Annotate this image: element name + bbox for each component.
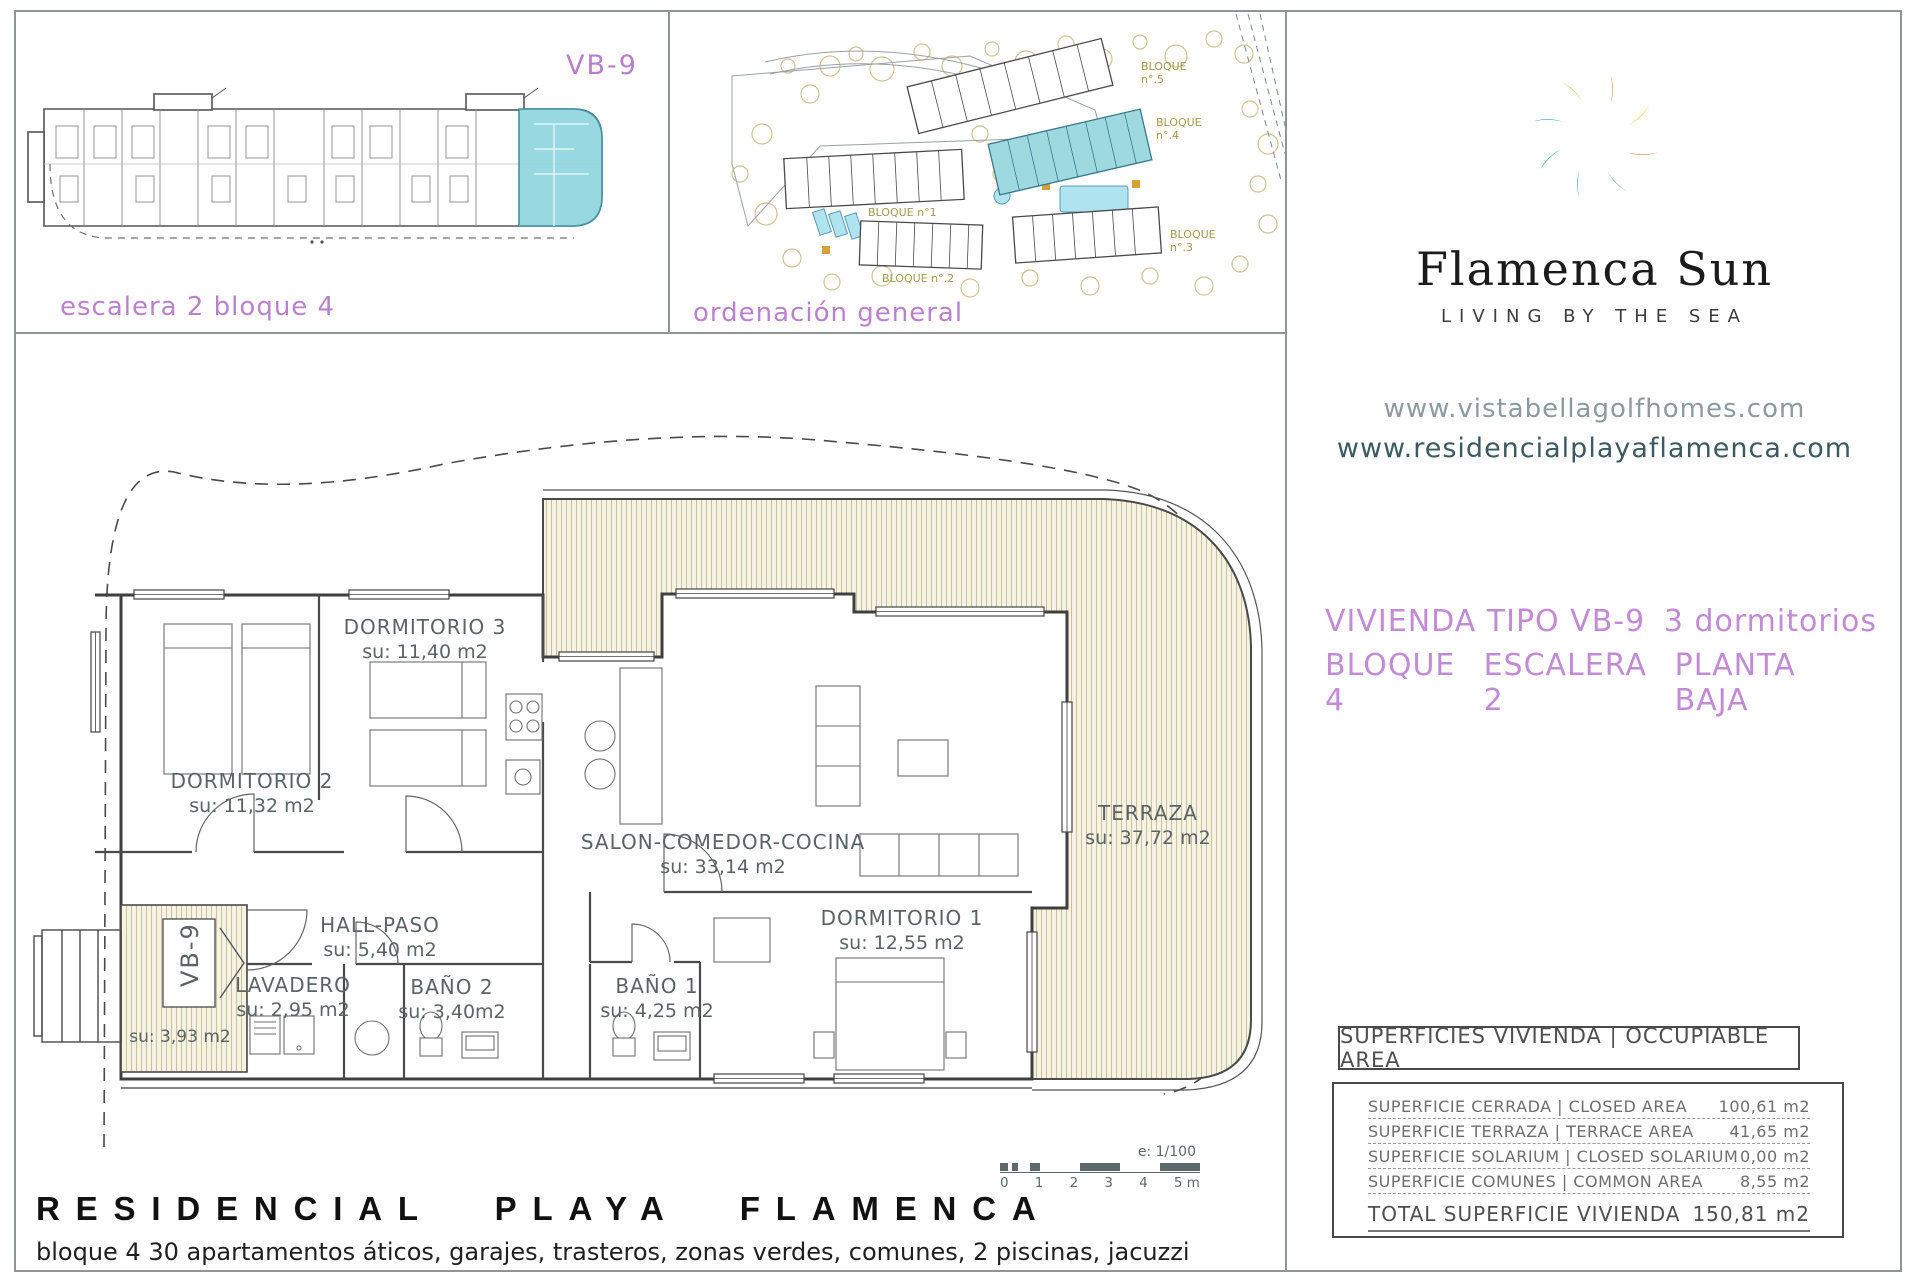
listing-bedrooms: 3 dormitorios [1664, 604, 1877, 639]
site-block-1 [784, 149, 964, 208]
scale-bar: e: 1/100 01 23 45 m [1000, 1144, 1200, 1191]
table-row-total: TOTAL SUPERFICIE VIVIENDA150,81 m2 [1368, 1194, 1810, 1232]
room-label-bano2: BAÑO 2su: 3,40m2 [398, 974, 505, 1025]
brand-name: Flamenca Sun [1287, 242, 1902, 296]
floor-plan-panel: VB-9 [14, 332, 1285, 1272]
flamenca-sun-logo-icon [1500, 42, 1690, 232]
highlighted-unit-vb9 [519, 109, 602, 226]
table-row-comunes: SUPERFICIE COMUNES | COMMON AREA8,55 m2 [1368, 1169, 1810, 1194]
brand-tagline: LIVING BY THE SEA [1287, 306, 1902, 327]
site-label-bloque2: BLOQUE n°.2 [882, 272, 954, 285]
listing-floor: PLANTA BAJA [1675, 648, 1877, 718]
listing-stair: ESCALERA 2 [1484, 648, 1675, 718]
link-vistabella[interactable]: www.vistabellagolfhomes.com [1287, 390, 1902, 429]
unit-tag: VB-9 [566, 50, 638, 81]
surfaces-table-header: SUPERFICIES VIVIENDA | OCCUPIABLE AREA [1338, 1026, 1800, 1070]
site-block-3 [1013, 207, 1162, 263]
website-links: www.vistabellagolfhomes.com www.residenc… [1287, 390, 1902, 470]
site-plan-panel: BLOQUEn°.5 BLOQUEn°.4 BLOQUEn°.3 BLOQUE … [670, 14, 1285, 330]
site-block-2 [859, 221, 982, 269]
brochure-page: { "unit_panel": { "tag": "VB-9", "captio… [0, 0, 1920, 1280]
room-label-terraza: TERRAZAsu: 37,72 m2 [1085, 800, 1210, 851]
room-label-dormitorio3: DORMITORIO 3su: 11,40 m2 [344, 614, 507, 665]
site-label-bloque3: BLOQUEn°.3 [1170, 228, 1216, 254]
room-label-hall: HALL-PASOsu: 5,40 m2 [320, 912, 440, 963]
scale-ticks: 01 23 45 m [1000, 1175, 1200, 1191]
project-subtitle: bloque 4 30 apartamentos áticos, garajes… [36, 1238, 1190, 1266]
site-label-bloque1: BLOQUE n°1 [868, 206, 937, 219]
surfaces-table: SUPERFICIE CERRADA | CLOSED AREA100,61 m… [1332, 1082, 1844, 1238]
scale-bar-segments [1000, 1163, 1200, 1173]
site-block-5 [907, 39, 1113, 134]
table-row-terraza: SUPERFICIE TERRAZA | TERRACE AREA41,65 m… [1368, 1119, 1810, 1144]
listing-block: BLOQUE 4 [1325, 648, 1484, 718]
site-plan-drawing [670, 14, 1285, 330]
site-block-4 [988, 109, 1152, 195]
link-residencial[interactable]: www.residencialplayaflamenca.com [1287, 429, 1902, 470]
room-label-lavadero: LAVADEROsu: 2,95 m2 [235, 972, 351, 1023]
project-title: RESIDENCIAL PLAYA FLAMENCA [36, 1190, 1052, 1228]
plan-vb9-tag: VB-9 [176, 922, 204, 987]
table-row-solarium: SUPERFICIE SOLARIUM | CLOSED SOLARIUM0,0… [1368, 1144, 1810, 1169]
room-label-bano1: BAÑO 1su: 4,25 m2 [600, 973, 713, 1024]
table-row-cerrada: SUPERFICIE CERRADA | CLOSED AREA100,61 m… [1368, 1094, 1810, 1119]
porch-area-label: su: 3,93 m2 [129, 1026, 230, 1048]
brand-block: Flamenca Sun LIVING BY THE SEA [1287, 42, 1902, 327]
exterior-stairs [34, 930, 121, 1042]
caption-escalera: escalera 2 bloque 4 [60, 292, 335, 322]
listing-info: VIVIENDA TIPO VB-9 3 dormitorios BLOQUE … [1325, 604, 1877, 718]
site-label-bloque5: BLOQUEn°.5 [1141, 60, 1187, 86]
room-label-dormitorio1: DORMITORIO 1su: 12,55 m2 [821, 905, 984, 956]
caption-ordenacion: ordenación general [693, 298, 963, 328]
scale-ratio: e: 1/100 [1000, 1144, 1200, 1160]
room-label-salon: SALON-COMEDOR-COCINAsu: 33,14 m2 [581, 829, 865, 880]
listing-type: VIVIENDA TIPO VB-9 [1325, 604, 1645, 639]
room-label-dormitorio2: DORMITORIO 2su: 11,32 m2 [171, 768, 334, 819]
site-label-bloque4: BLOQUEn°.4 [1156, 116, 1202, 142]
